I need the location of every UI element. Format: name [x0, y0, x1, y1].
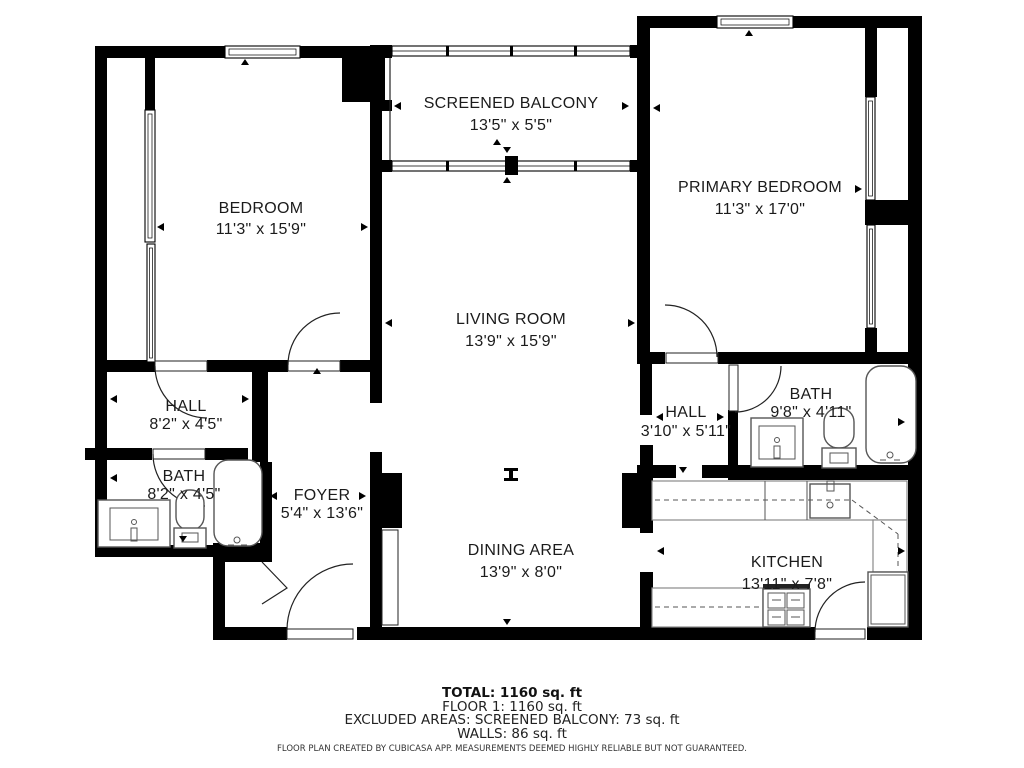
- room-dims-bath-right: 9'8" x 4'11": [770, 404, 851, 421]
- room-dims-balcony: 13'5" x 5'5": [470, 117, 552, 134]
- window-bedroom-top: [225, 46, 300, 58]
- room-dims-bath-left: 8'2" x 4'5": [147, 486, 220, 503]
- room-label-dining-area: DINING AREA: [468, 542, 574, 559]
- room-dims-foyer: 5'4" x 13'6": [281, 505, 363, 522]
- room-label-foyer: FOYER: [294, 487, 351, 504]
- foyer-pocket-panel: [382, 530, 398, 625]
- kitchen-counter-top: [652, 481, 907, 520]
- room-dims-primary-bedroom: 11'3" x 17'0": [715, 201, 805, 218]
- bath-left-sink: [98, 500, 170, 547]
- room-label-hall-right: HALL: [665, 404, 706, 421]
- room-label-living-room: LIVING ROOM: [456, 311, 566, 328]
- bath-right-sink: [751, 418, 803, 467]
- window-primary-right-upper: [866, 97, 875, 200]
- room-dims-bedroom: 11'3" x 15'9": [216, 221, 306, 238]
- section-marker: [504, 468, 518, 481]
- room-label-kitchen: KITCHEN: [751, 554, 823, 571]
- room-dims-living-room: 13'9" x 15'9": [465, 333, 557, 350]
- room-label-balcony: SCREENED BALCONY: [424, 95, 599, 112]
- room-dims-hall-right: 3'10" x 5'11": [641, 423, 731, 440]
- window-primary-right-lower: [867, 225, 875, 328]
- floor-plan-canvas: SCREENED BALCONY 13'5" x 5'5" BEDROOM 11…: [0, 0, 1024, 768]
- room-label-bath-left: BATH: [163, 468, 206, 485]
- room-dims-hall-left: 8'2" x 4'5": [149, 416, 222, 433]
- balcony-screen-bottom: [392, 156, 630, 175]
- room-label-bath-right: BATH: [790, 386, 833, 403]
- room-dims-dining-area: 13'9" x 8'0": [480, 564, 562, 581]
- kitchen-fridge: [868, 572, 908, 627]
- bath-left-tub: [214, 460, 262, 546]
- room-label-bedroom: BEDROOM: [219, 200, 304, 217]
- door-bedroom: [288, 313, 340, 371]
- door-entry: [287, 564, 353, 639]
- window-bedroom-left-lower: [147, 244, 155, 362]
- door-primary-bedroom: [665, 305, 718, 363]
- summary-walls: WALLS: 86 sq. ft: [457, 726, 567, 742]
- room-dims-kitchen: 13'11" x 7'8": [742, 576, 832, 593]
- window-primary-top: [717, 16, 793, 28]
- disclaimer-text: FLOOR PLAN CREATED BY CUBICASA APP. MEAS…: [277, 744, 747, 754]
- bath-right-tub: [866, 366, 916, 463]
- room-label-hall-left: HALL: [165, 398, 206, 415]
- room-label-primary-bedroom: PRIMARY BEDROOM: [678, 179, 842, 196]
- balcony-screen-top: [392, 46, 630, 56]
- floor-plan-page: SCREENED BALCONY 13'5" x 5'5" BEDROOM 11…: [0, 0, 1024, 768]
- entry-angled-wall: [262, 562, 287, 604]
- window-bedroom-left-upper: [145, 110, 155, 242]
- summary-footer: TOTAL: 1160 sq. ft FLOOR 1: 1160 sq. ft …: [277, 685, 747, 754]
